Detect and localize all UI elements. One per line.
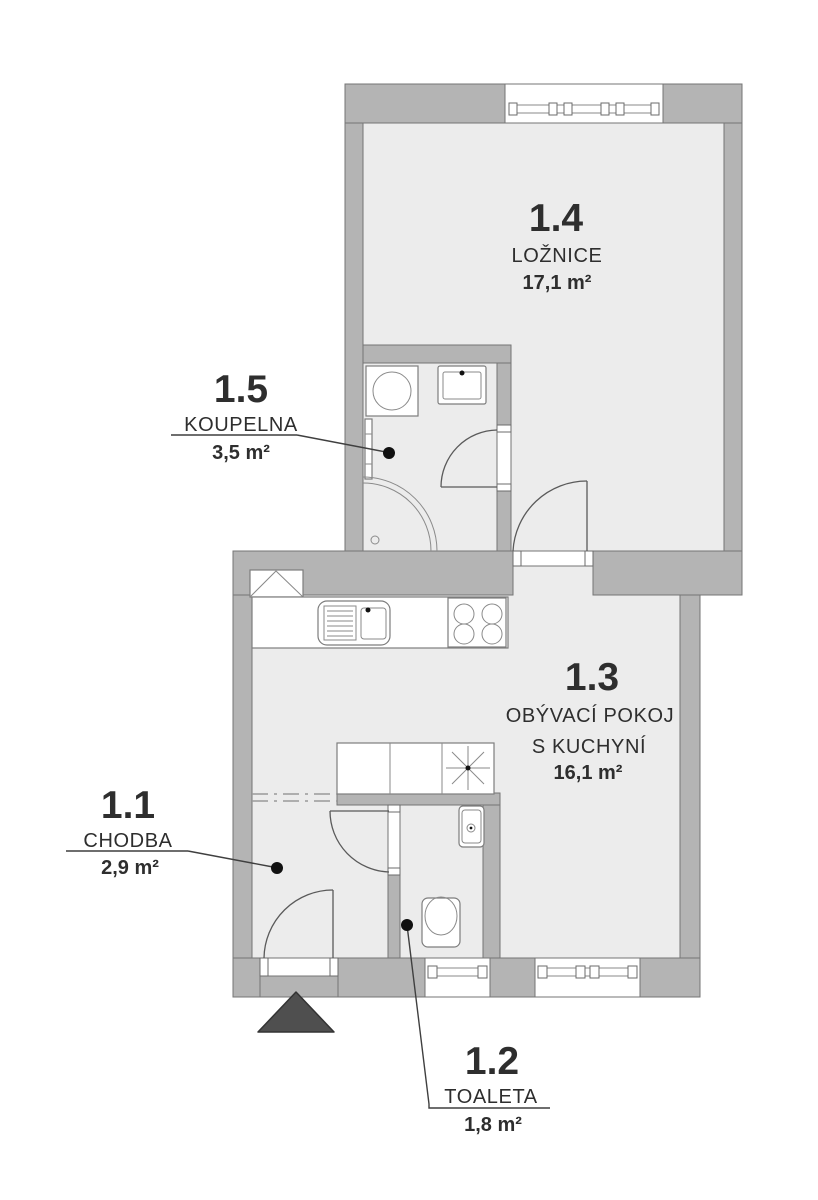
room-number: 1.5 [214, 368, 268, 411]
stove-icon [448, 598, 506, 647]
room-number: 1.4 [529, 197, 584, 240]
entrance-arrow-icon [258, 992, 334, 1032]
bedroom-door-threshold [513, 551, 593, 566]
room-number: 1.1 [101, 784, 155, 827]
washing-machine-icon [366, 366, 418, 416]
room-name: CHODBA [83, 830, 172, 852]
room-area: 1,8 m² [464, 1114, 522, 1136]
bathroom-sink-icon [438, 366, 486, 404]
living-window-icon [535, 958, 640, 997]
room-name: LOŽNICE [512, 244, 603, 267]
entry-door-threshold [260, 958, 338, 976]
toilet-window-icon [425, 958, 490, 997]
room-label-hallway: 1.1 CHODBA 2,9 m² [83, 784, 172, 879]
shaft-icon [250, 570, 303, 597]
bedroom-window-icon [505, 84, 663, 123]
toilet-door-frame [388, 805, 400, 875]
room-label-bathroom: 1.5 KOUPELNA 3,5 m² [184, 368, 298, 464]
room-area: 16,1 m² [554, 762, 623, 784]
room-number: 1.3 [565, 656, 619, 699]
cooktop-star-icon [446, 746, 490, 790]
toilet-bowl-icon [422, 897, 460, 947]
room-number: 1.2 [465, 1040, 519, 1083]
kitchen-sink-icon [318, 601, 390, 645]
room-label-toilet: 1.2 TOALETA 1,8 m² [444, 1040, 538, 1136]
bathroom-door-frame [497, 425, 511, 491]
room-area: 3,5 m² [212, 442, 270, 464]
kitchen-cabinet-row [337, 743, 494, 794]
toilet-sink-icon [459, 806, 484, 847]
room-area: 2,9 m² [101, 857, 159, 879]
room-name-line2: S KUCHYNÍ [532, 735, 646, 758]
floor-plan: 1.4 LOŽNICE 17,1 m² 1.5 KOUPELNA 3,5 m² … [0, 0, 818, 1200]
room-area: 17,1 m² [523, 272, 592, 294]
room-name: TOALETA [444, 1086, 538, 1108]
room-name: KOUPELNA [184, 414, 298, 436]
room-name: OBÝVACÍ POKOJ [506, 704, 675, 727]
